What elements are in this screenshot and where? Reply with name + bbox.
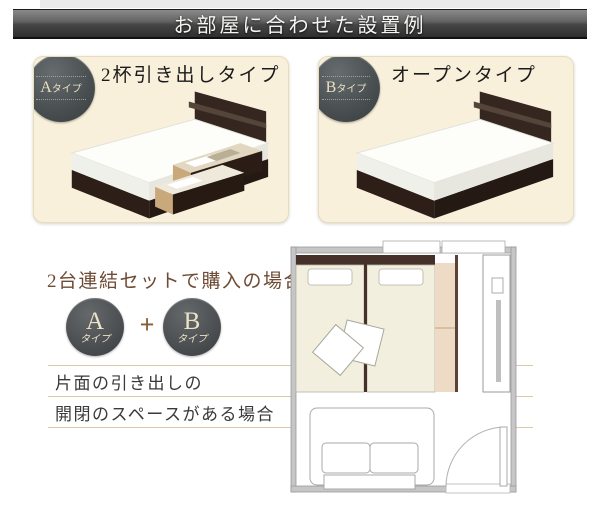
floor-plan	[288, 236, 518, 498]
circle-type-a: A タイプ	[66, 298, 124, 356]
panel-b-title: オープンタイプ	[391, 60, 537, 87]
bottom-section-title: 2台連結セットで購入の場合	[47, 266, 304, 293]
bed-drawer-type-illustration	[46, 91, 284, 219]
closet	[483, 255, 510, 392]
plan-pillow	[308, 269, 352, 285]
section-header-title: お部屋に合わせた設置例	[174, 9, 427, 38]
section-header: お部屋に合わせた設置例	[13, 9, 587, 39]
circle-type-b: B タイプ	[163, 298, 221, 356]
window-icons	[383, 241, 505, 253]
note-line-1: 片面の引き出しの	[55, 369, 203, 394]
door-leaf	[500, 427, 507, 486]
sofa	[310, 408, 434, 489]
panel-a-title: 2杯引き出しタイプ	[101, 60, 281, 87]
page-top-strip	[40, 0, 560, 8]
panel-type-b: オープンタイプ Bタイプ	[318, 56, 574, 223]
panel-type-a: 2杯引き出しタイプ Aタイプ	[33, 56, 289, 223]
note-line-2: 開閉のスペースがある場合	[55, 400, 275, 425]
bed-open-type-illustration	[331, 91, 569, 219]
plan-pillow	[379, 269, 423, 285]
plus-sign: +	[133, 310, 161, 340]
plan-bed-divider	[364, 255, 367, 392]
drawer-space	[435, 255, 458, 392]
